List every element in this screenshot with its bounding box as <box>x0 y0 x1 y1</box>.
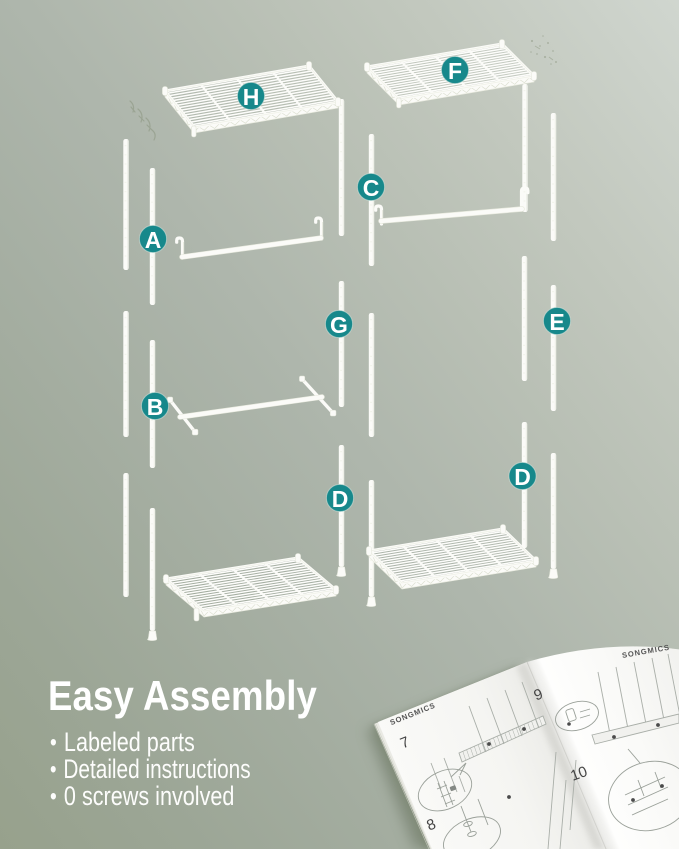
svg-text:E: E <box>549 309 564 335</box>
svg-text:D: D <box>332 486 349 512</box>
svg-text:D: D <box>514 464 531 490</box>
svg-text:H: H <box>243 84 260 110</box>
svg-text:C: C <box>363 175 380 201</box>
svg-text:G: G <box>330 312 348 338</box>
svg-text:B: B <box>147 394 164 420</box>
svg-text:F: F <box>448 58 462 84</box>
svg-text:A: A <box>145 227 162 253</box>
